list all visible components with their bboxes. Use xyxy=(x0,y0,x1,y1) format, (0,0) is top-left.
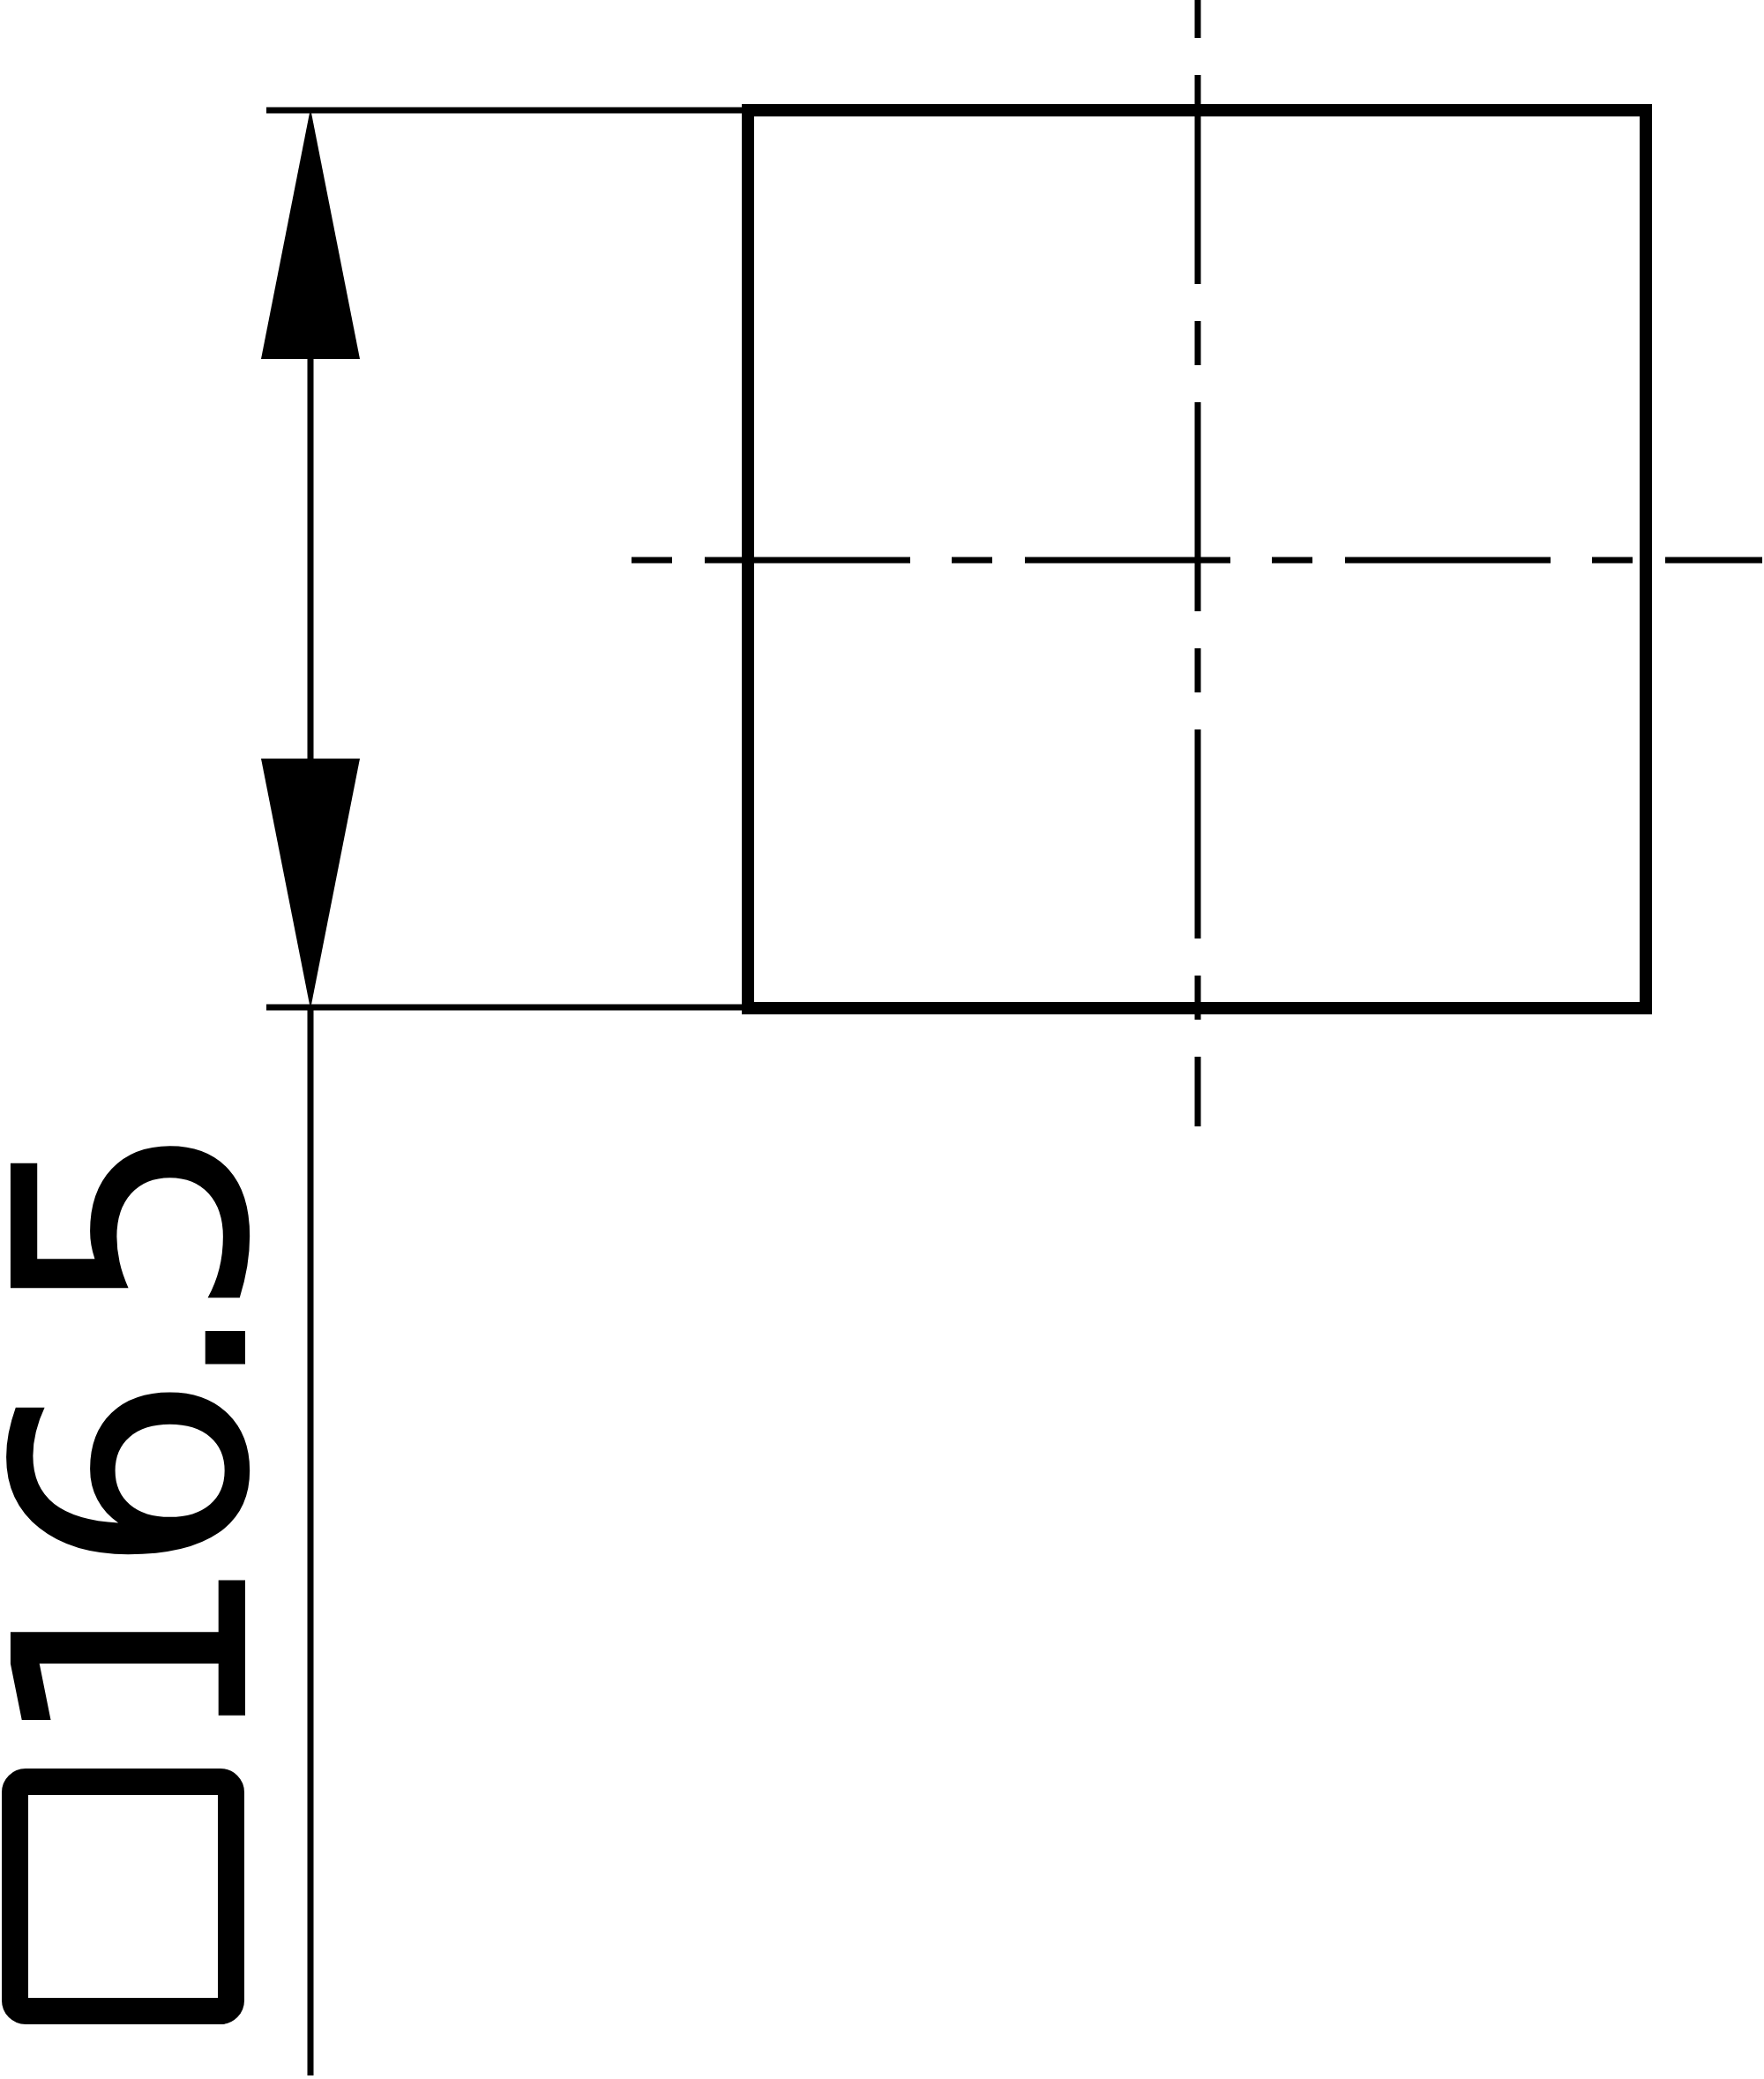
dimension-value-text: 16.5 xyxy=(0,1141,321,1755)
arrowhead-up-icon xyxy=(261,108,360,359)
square-symbol-glyph xyxy=(15,1782,231,2011)
engineering-drawing-canvas: 16.5 xyxy=(0,0,1764,2079)
dimension-drawing: 16.5 xyxy=(0,0,1764,2079)
arrowhead-down-icon xyxy=(261,759,360,1009)
